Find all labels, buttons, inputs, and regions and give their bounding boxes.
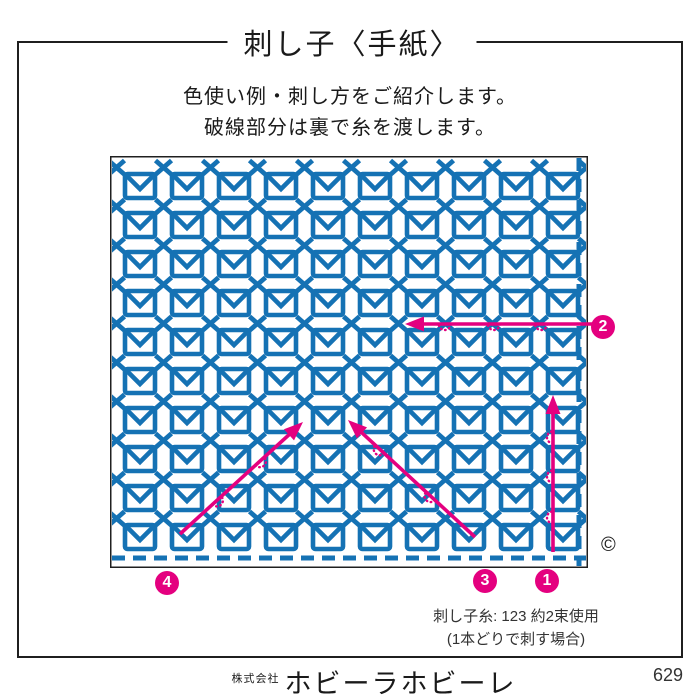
envelope-icon xyxy=(125,447,155,471)
page-title: 刺し子〈手紙〉 xyxy=(227,21,476,63)
envelope-icon xyxy=(219,174,249,198)
envelope-icon xyxy=(548,174,578,198)
envelope-icon xyxy=(172,330,202,354)
envelope-icon xyxy=(313,486,343,510)
intro-text: 色使い例・刺し方をご紹介します。 破線部分は裏で糸を渡します。 xyxy=(0,82,700,144)
footer-logo: 株式会社 ホビーラホビーレ xyxy=(24,662,700,700)
envelope-icon xyxy=(125,369,155,393)
envelope-icon xyxy=(501,369,531,393)
envelope-icon xyxy=(454,174,484,198)
step-marker-1: 1 xyxy=(535,569,559,593)
envelope-icon xyxy=(219,252,249,276)
envelope-icon xyxy=(266,525,296,549)
envelope-icon xyxy=(313,447,343,471)
envelope-icon xyxy=(266,174,296,198)
company-name: ホビーラホビーレ xyxy=(285,662,517,700)
envelope-icon xyxy=(266,330,296,354)
envelope-icon xyxy=(548,252,578,276)
stitch-diagram xyxy=(110,156,588,568)
envelope-icon xyxy=(219,408,249,432)
envelope-icon xyxy=(360,330,390,354)
envelope-icon xyxy=(219,291,249,315)
envelope-icon xyxy=(125,330,155,354)
envelope-icon xyxy=(454,291,484,315)
envelope-icon xyxy=(501,213,531,237)
envelope-icon xyxy=(454,408,484,432)
envelope-icon xyxy=(172,291,202,315)
envelope-icon xyxy=(313,252,343,276)
envelope-icon xyxy=(407,525,437,549)
envelope-icon xyxy=(407,213,437,237)
envelope-icon xyxy=(360,174,390,198)
envelope-icon xyxy=(125,408,155,432)
envelope-icon xyxy=(454,252,484,276)
envelope-icon xyxy=(125,291,155,315)
envelope-icon xyxy=(407,330,437,354)
envelope-icon xyxy=(360,369,390,393)
page-number: 629 xyxy=(653,665,683,686)
envelope-icon xyxy=(454,330,484,354)
envelope-icon xyxy=(454,486,484,510)
intro-text-line-2: 破線部分は裏で糸を渡します。 xyxy=(0,113,700,144)
envelope-icon xyxy=(219,369,249,393)
envelope-icon xyxy=(266,486,296,510)
thread-usage-line-1: 刺し子糸: 123 約2束使用 xyxy=(400,605,632,628)
thread-usage-line-2: (1本どりで刺す場合) xyxy=(400,628,632,651)
envelope-icon xyxy=(360,291,390,315)
envelope-icon xyxy=(454,447,484,471)
envelope-icon xyxy=(125,486,155,510)
envelope-icon xyxy=(407,252,437,276)
envelope-icon xyxy=(125,525,155,549)
envelope-icon xyxy=(407,447,437,471)
envelope-icon xyxy=(172,213,202,237)
envelope-icon xyxy=(125,174,155,198)
envelope-icon xyxy=(407,408,437,432)
envelope-icon xyxy=(266,369,296,393)
envelope-icon xyxy=(501,330,531,354)
envelope-icon xyxy=(313,291,343,315)
envelope-icon xyxy=(172,447,202,471)
intro-text-line-1: 色使い例・刺し方をご紹介します。 xyxy=(0,82,700,113)
envelope-icon xyxy=(313,213,343,237)
envelope-icon xyxy=(125,252,155,276)
envelope-icon xyxy=(501,408,531,432)
instruction-sheet: 刺し子〈手紙〉 色使い例・刺し方をご紹介します。 破線部分は裏で糸を渡します。 … xyxy=(0,0,700,700)
envelope-icon xyxy=(219,330,249,354)
envelope-icon xyxy=(219,447,249,471)
envelope-icon xyxy=(172,486,202,510)
envelope-icon xyxy=(313,525,343,549)
envelope-icon xyxy=(407,174,437,198)
envelope-icon xyxy=(548,369,578,393)
envelope-icon xyxy=(548,291,578,315)
step-marker-2: 2 xyxy=(591,315,615,339)
envelope-icon xyxy=(454,525,484,549)
envelope-icon xyxy=(266,213,296,237)
envelope-icon xyxy=(172,369,202,393)
envelope-icon xyxy=(266,291,296,315)
envelope-icon xyxy=(407,291,437,315)
thread-usage-note: 刺し子糸: 123 約2束使用 (1本どりで刺す場合) xyxy=(400,605,632,651)
envelope-icon xyxy=(454,369,484,393)
envelope-icon xyxy=(125,213,155,237)
envelope-icon xyxy=(501,174,531,198)
envelope-icon xyxy=(501,252,531,276)
envelope-icon xyxy=(172,408,202,432)
envelope-icon xyxy=(219,525,249,549)
envelope-icon xyxy=(360,525,390,549)
envelope-icon xyxy=(407,369,437,393)
envelope-icon xyxy=(501,486,531,510)
step-marker-4: 4 xyxy=(155,571,179,595)
envelope-icon xyxy=(313,369,343,393)
envelope-icon xyxy=(266,252,296,276)
envelope-icon xyxy=(501,525,531,549)
envelope-icon xyxy=(172,252,202,276)
envelope-icon xyxy=(313,330,343,354)
envelope-icon xyxy=(219,213,249,237)
envelope-icon xyxy=(360,213,390,237)
envelope-icon xyxy=(501,291,531,315)
envelope-icon xyxy=(454,213,484,237)
step-marker-3: 3 xyxy=(473,569,497,593)
envelope-icon xyxy=(313,408,343,432)
envelope-icon xyxy=(501,447,531,471)
envelope-icon xyxy=(172,174,202,198)
envelope-icon xyxy=(360,252,390,276)
envelope-icon xyxy=(313,174,343,198)
envelope-icon xyxy=(219,486,249,510)
company-prefix: 株式会社 xyxy=(232,670,280,686)
envelope-icon xyxy=(548,330,578,354)
copyright-symbol: © xyxy=(601,534,616,557)
envelope-icon xyxy=(548,213,578,237)
envelope-icon xyxy=(360,486,390,510)
